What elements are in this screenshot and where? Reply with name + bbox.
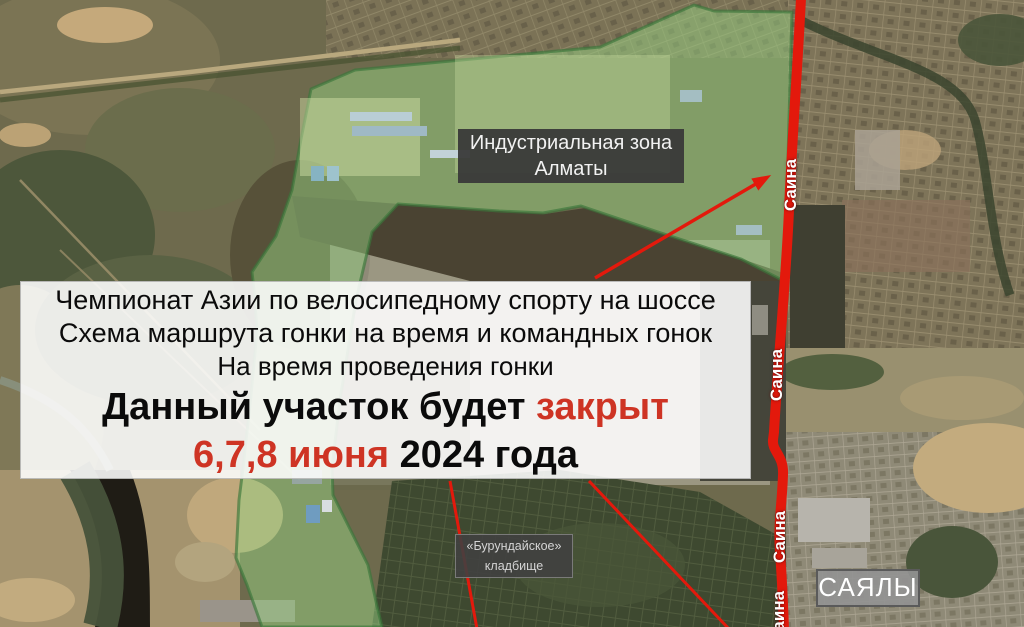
cemetery-label-line2: кладбище	[456, 556, 572, 576]
notice-line-scheme: Схема маршрута гонки на время и командны…	[21, 317, 750, 350]
notice-line-closed: Данный участок будет закрыт	[21, 383, 750, 431]
road-label-saina-2: Саина	[766, 333, 788, 417]
notice-dates-black: 2024 года	[400, 434, 578, 476]
notice-closed-black: Данный участок будет	[102, 386, 525, 428]
road-label-saina-1: Саина	[780, 143, 802, 227]
notice-line-during: На время проведения гонки	[21, 350, 750, 383]
cemetery-label-line1: «Бурундайское»	[456, 536, 572, 556]
industrial-zone-label-line1: Индустриальная зона	[458, 130, 684, 156]
cemetery-label: «Бурундайское» кладбище	[455, 534, 573, 578]
industrial-zone-label: Индустриальная зона Алматы	[458, 129, 684, 183]
notice-line-dates: 6,7,8 июня 2024 года	[21, 431, 750, 479]
closure-notice-box: Чемпионат Азии по велосипедному спорту н…	[20, 281, 751, 479]
map-screenshot: Индустриальная зона Алматы Чемпионат Ази…	[0, 0, 1024, 627]
district-label-sayaly: САЯЛЫ	[816, 569, 920, 607]
notice-dates-red: 6,7,8 июня	[193, 434, 389, 476]
notice-closed-red: закрыт	[536, 386, 669, 428]
road-label-saina-3: Саина	[769, 495, 791, 579]
industrial-zone-label-line2: Алматы	[458, 156, 684, 182]
notice-line-championship: Чемпионат Азии по велосипедному спорту н…	[21, 284, 750, 317]
road-label-saina-4: Саина	[768, 575, 790, 627]
